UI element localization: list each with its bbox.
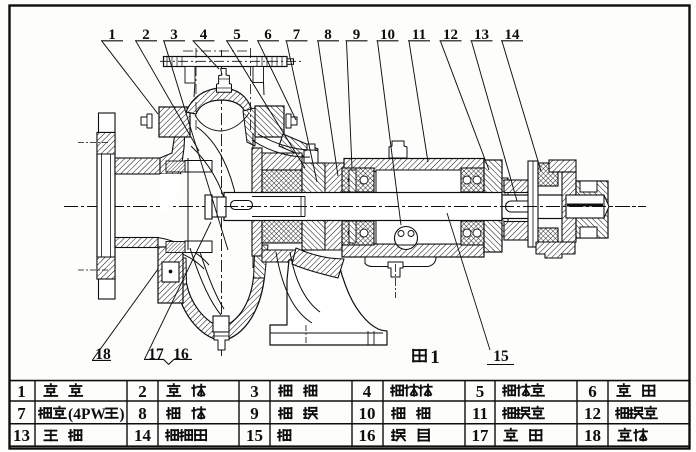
svg-text:7: 7	[17, 404, 26, 423]
svg-text:17: 17	[472, 426, 490, 445]
svg-text:18: 18	[584, 426, 601, 445]
svg-text:17: 17	[148, 346, 164, 363]
svg-text:): )	[119, 406, 124, 423]
svg-text:8: 8	[138, 404, 147, 423]
svg-text:15: 15	[246, 426, 263, 445]
svg-text:16: 16	[173, 346, 189, 363]
svg-text:3: 3	[250, 382, 259, 401]
svg-text:15: 15	[493, 348, 509, 365]
svg-text:6: 6	[588, 382, 597, 401]
svg-text:1: 1	[430, 347, 440, 368]
svg-text:1: 1	[17, 382, 26, 401]
svg-text:14: 14	[134, 426, 152, 445]
svg-text:12: 12	[584, 404, 601, 423]
svg-text:11: 11	[472, 404, 488, 423]
svg-text:2: 2	[138, 382, 147, 401]
svg-text:13: 13	[13, 426, 30, 445]
svg-text:9: 9	[250, 404, 259, 423]
svg-text:10: 10	[359, 404, 376, 423]
svg-text:16: 16	[359, 426, 376, 445]
svg-text:4: 4	[363, 382, 372, 401]
svg-text:5: 5	[476, 382, 485, 401]
svg-text:(4PW: (4PW	[68, 406, 106, 423]
